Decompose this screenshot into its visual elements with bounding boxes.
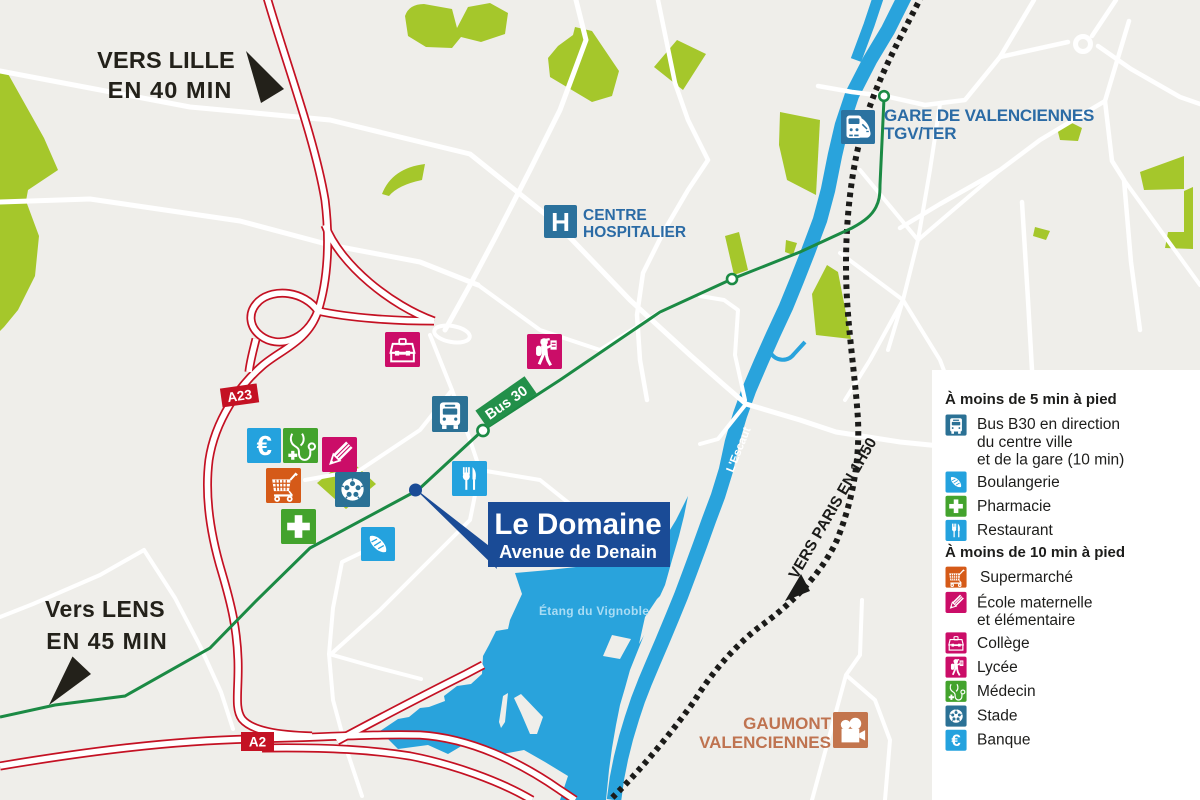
svg-text:VALENCIENNES: VALENCIENNES	[699, 733, 831, 752]
svg-text:et élémentaire: et élémentaire	[977, 612, 1075, 629]
svg-text:Collège: Collège	[977, 635, 1030, 652]
svg-text:et de la gare (10 min): et de la gare (10 min)	[977, 452, 1124, 469]
svg-text:Boulangerie: Boulangerie	[977, 474, 1060, 491]
svg-text:A2: A2	[249, 735, 266, 750]
svg-text:Pharmacie: Pharmacie	[977, 498, 1051, 515]
svg-text:TGV/TER: TGV/TER	[884, 124, 956, 143]
svg-text:EN 45 MIN: EN 45 MIN	[46, 628, 167, 654]
svg-text:École maternelle: École maternelle	[977, 595, 1092, 612]
svg-text:Avenue de Denain: Avenue de Denain	[499, 541, 657, 562]
svg-text:GARE DE VALENCIENNES: GARE DE VALENCIENNES	[884, 106, 1094, 125]
svg-text:À moins de 10 min à pied: À moins de 10 min à pied	[945, 544, 1125, 561]
svg-text:Lycée: Lycée	[977, 659, 1018, 676]
svg-text:Stade: Stade	[977, 708, 1018, 725]
svg-text:Banque: Banque	[977, 732, 1030, 749]
svg-text:HOSPITALIER: HOSPITALIER	[583, 224, 686, 241]
svg-text:Restaurant: Restaurant	[977, 522, 1054, 539]
svg-text:Vers LENS: Vers LENS	[45, 596, 165, 622]
svg-text:Médecin: Médecin	[977, 683, 1036, 700]
svg-text:À moins de 5 min à pied: À moins de 5 min à pied	[945, 391, 1117, 408]
svg-text:Bus B30 en direction: Bus B30 en direction	[977, 416, 1120, 433]
svg-text:du centre ville: du centre ville	[977, 434, 1073, 451]
svg-text:CENTRE: CENTRE	[583, 207, 647, 224]
svg-text:Supermarché: Supermarché	[980, 569, 1073, 586]
svg-text:Étang du Vignoble: Étang du Vignoble	[539, 603, 649, 618]
svg-text:Le Domaine: Le Domaine	[494, 508, 661, 541]
svg-text:GAUMONT: GAUMONT	[743, 714, 831, 733]
svg-text:EN 40 MIN: EN 40 MIN	[108, 77, 233, 103]
svg-text:VERS LILLE: VERS LILLE	[97, 47, 235, 73]
